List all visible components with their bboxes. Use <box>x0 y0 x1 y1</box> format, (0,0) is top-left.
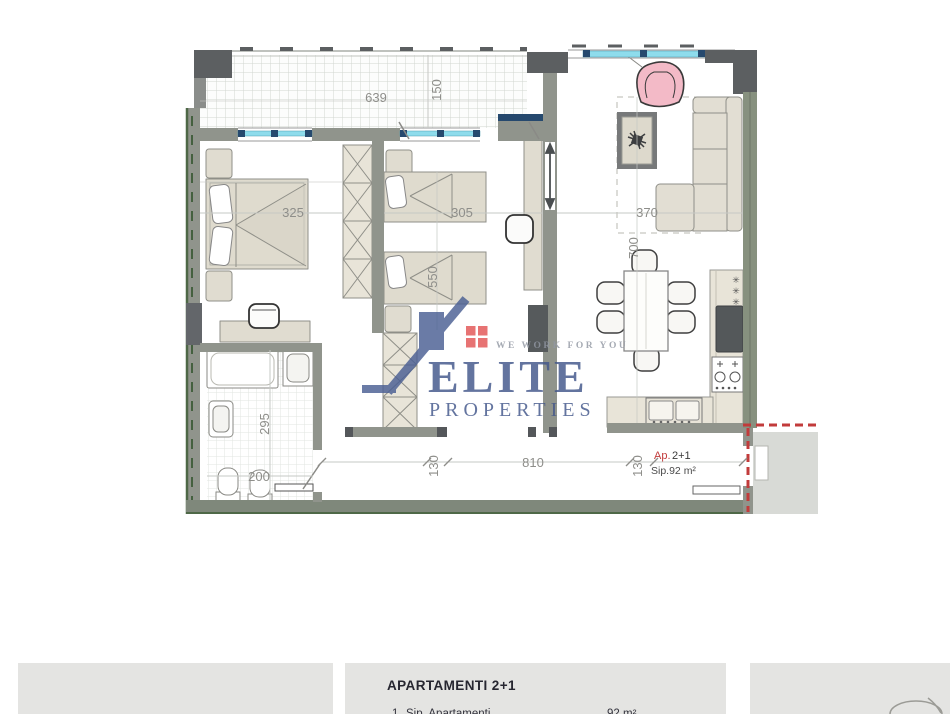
door-jamb <box>313 492 322 502</box>
structural-column <box>194 50 232 78</box>
stove <box>712 357 743 392</box>
dim-balcony-depth: 150 <box>429 79 444 101</box>
shelf-marks: ✳ ✳ ✳ <box>732 275 740 307</box>
dim-bedroom1-width: 325 <box>282 205 304 220</box>
dim-living-width: 370 <box>636 205 658 220</box>
wardrobe-cell <box>343 183 372 221</box>
door-jamb <box>437 427 447 437</box>
dim-balcony-width: 639 <box>365 90 387 105</box>
window-mullion <box>238 130 245 137</box>
exterior-wall-bottom <box>186 500 758 514</box>
dim-bedroom2-width: 305 <box>451 205 473 220</box>
footer: APARTAMENTI 2+1 1. Sip. Apartamenti 92 m… <box>18 663 950 714</box>
watermark-brand: ELITE <box>428 351 589 402</box>
pillow <box>385 175 407 209</box>
footer-row-value: 92 m² <box>607 708 637 714</box>
window-mullion <box>305 130 312 137</box>
nightstand <box>206 149 232 178</box>
dim-bedroom2-length: 550 <box>425 266 440 288</box>
unit-label: Ap. 2+1 Sip.92 m² <box>651 450 696 477</box>
watermark-tagline: WE WORK FOR YOU <box>496 341 628 351</box>
shelf-asterisk-icon: ✳ <box>732 275 740 285</box>
door-jamb <box>528 427 536 437</box>
window-mullion <box>583 50 590 57</box>
wall-segment <box>194 78 206 108</box>
logo-body <box>419 312 444 350</box>
footer-row-label: Sip. Apartamenti <box>406 708 490 714</box>
bedroom1-furniture <box>206 149 310 342</box>
entry-door-leaf <box>693 486 740 494</box>
dim-bath-length: 295 <box>257 413 272 435</box>
bathtub <box>207 350 278 388</box>
dining-set <box>597 250 695 371</box>
chair <box>597 311 625 333</box>
dim-hall-seg-right: 130 <box>630 455 645 477</box>
bathroom-wall <box>313 343 322 450</box>
logo-red-squares-icon <box>466 326 488 348</box>
structural-column <box>527 52 568 73</box>
neighbor-door-leaf <box>755 446 768 480</box>
shelf-asterisk-icon: ✳ <box>732 286 740 296</box>
fridge <box>716 306 743 352</box>
dim-hall-length: 810 <box>522 455 544 470</box>
shelf-asterisk-icon: ✳ <box>732 297 740 307</box>
nightstand <box>206 271 232 301</box>
chair <box>667 311 695 333</box>
wardrobe-cell <box>343 221 372 259</box>
watermark-brand-line2: PROPERTIES <box>429 399 596 421</box>
pillow <box>209 184 233 224</box>
door-jamb <box>549 427 557 437</box>
wall-segment <box>200 128 238 141</box>
wall-column <box>186 303 202 345</box>
footer-row-index: 1. <box>392 708 402 714</box>
unit-label-prefix: Ap. <box>654 450 671 462</box>
window-mullion <box>271 130 278 137</box>
door-jamb <box>345 427 353 437</box>
toilet-bowl <box>218 468 238 495</box>
footer-panel-left <box>18 663 333 714</box>
bathroom-wall <box>200 343 322 352</box>
window-lintel-bar <box>498 114 544 121</box>
chair <box>667 282 695 304</box>
sink-basin <box>649 401 673 420</box>
sofa <box>656 97 742 231</box>
window-mullion <box>473 130 480 137</box>
balcony-tile-hatch <box>200 55 527 128</box>
balcony <box>200 49 527 128</box>
wardrobe-bedroom1 <box>343 145 372 298</box>
sofa-back <box>726 97 742 231</box>
floor-plan-drawing: ✳ ✳ ✳ <box>0 0 950 714</box>
footer-panel-right <box>750 663 950 714</box>
interior-wall <box>345 427 447 437</box>
window-mullion <box>698 50 705 57</box>
dim-bath-width: 200 <box>248 469 270 484</box>
interior-wall <box>372 133 384 333</box>
structural-column <box>733 50 757 94</box>
door-leaf <box>275 484 313 491</box>
sofa-cushion <box>693 113 727 149</box>
armchair <box>637 62 684 107</box>
cabinet <box>385 306 411 332</box>
dim-living-length: 700 <box>626 237 641 259</box>
shower-tray-inner <box>287 354 309 382</box>
wardrobe-cell <box>383 397 417 430</box>
unit-label-area: Sip.92 m² <box>651 465 696 477</box>
sink-basin <box>213 406 229 432</box>
wardrobe-cell <box>343 145 372 183</box>
wardrobe-cell <box>343 259 372 298</box>
sofa-chaise <box>656 184 694 231</box>
unit-label-unit: 2+1 <box>672 450 691 462</box>
interior-wall <box>607 423 743 433</box>
pillow <box>385 255 407 289</box>
kitchen-sink <box>646 398 702 424</box>
window-bedroom2 <box>400 128 480 141</box>
footer-title: APARTAMENTI 2+1 <box>387 678 516 693</box>
window-mullion <box>437 130 444 137</box>
chair <box>506 215 533 243</box>
sink-basin <box>676 401 699 420</box>
floor-plan-page: ✳ ✳ ✳ <box>0 0 950 714</box>
sofa-cushion <box>693 149 727 184</box>
wall-segment <box>312 128 400 141</box>
dim-hall-seg-left: 130 <box>426 455 441 477</box>
desk-chair <box>249 304 279 328</box>
sofa-cushion <box>693 184 727 231</box>
window-bedroom1 <box>238 128 312 141</box>
window-mullion <box>640 50 647 57</box>
pillow <box>209 226 233 266</box>
chair <box>597 282 625 304</box>
